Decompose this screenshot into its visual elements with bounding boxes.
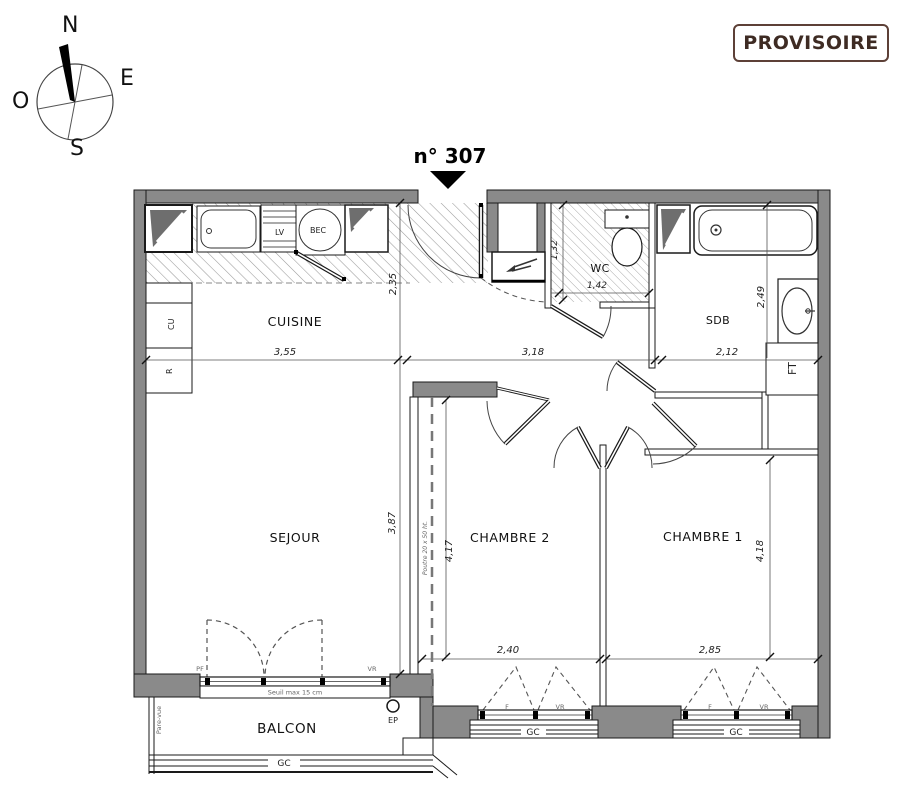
- room-label-wc: WC: [590, 262, 609, 275]
- bathtub-icon: [694, 206, 817, 255]
- compass-east: E: [120, 66, 134, 91]
- pare-vue-label: Pare-vue: [155, 706, 163, 734]
- seuil-note: Seuil max 15 cm: [268, 689, 322, 697]
- dim-cuisine-height: 2,35: [388, 273, 399, 295]
- chambre2-window: GC F VR: [470, 667, 598, 738]
- entry-niche: [492, 252, 545, 282]
- vr-label-chambre1: VR: [760, 703, 769, 711]
- dimension-labels: 3,55 3,18 2,12 2,35 3,87 4,17 4,18 2,49 …: [274, 240, 767, 656]
- sink-icon: [197, 206, 260, 252]
- technical-duct: FT: [766, 343, 818, 395]
- dim-sdb-height: 2,49: [756, 286, 767, 308]
- dim-wc-width: 1,42: [587, 281, 607, 291]
- pf-label: PF: [196, 665, 204, 673]
- compass-west: O: [12, 89, 29, 114]
- compass-north: N: [62, 13, 78, 38]
- vr-label-chambre2: VR: [556, 703, 565, 711]
- dim-chambre1-height: 4,18: [755, 540, 766, 562]
- dim-hall-width: 3,18: [522, 347, 544, 358]
- ep-downspout-icon: [387, 700, 399, 712]
- balcony: GC BALCON EP Pare-vue: [149, 697, 457, 778]
- room-labels: CUISINE SEJOUR CHAMBRE 2 CHAMBRE 1 WC SD…: [268, 262, 743, 545]
- kitchen-window-icon: [145, 205, 192, 252]
- rangement-label: R: [165, 368, 174, 374]
- room-label-cuisine: CUISINE: [268, 314, 323, 329]
- dim-sdb-width: 2,12: [716, 347, 738, 358]
- room-label-sejour: SEJOUR: [270, 530, 321, 545]
- cumulus-label: CU: [167, 318, 176, 330]
- bathroom-window-icon: [657, 205, 690, 253]
- dim-chambre1-window: 2,85: [699, 645, 721, 656]
- entrance-marker-icon: [430, 171, 466, 189]
- dim-chambre2-height: 4,17: [444, 539, 455, 562]
- floor-plan-page: PROVISOIRE n° 307 N E O S: [0, 0, 914, 800]
- dim-sejour-height: 3,87: [387, 511, 398, 534]
- beam-note: Poutre 20 x 50 ht.: [422, 521, 429, 575]
- kitchen-fixtures: LV BEC CU R: [145, 205, 388, 393]
- compass-south: S: [70, 136, 84, 161]
- gc-label-chambre2: GC: [526, 728, 539, 738]
- boiler-icon: BEC: [296, 205, 345, 255]
- ft-label: FT: [786, 362, 799, 375]
- floor-plan-drawing: N E O S: [0, 0, 914, 800]
- vr-label-sejour: VR: [368, 665, 377, 673]
- room-label-balcon: BALCON: [257, 721, 317, 737]
- f-label-chambre2: F: [505, 703, 509, 711]
- dim-wc-height: 1,32: [550, 240, 560, 260]
- compass-rose: N E O S: [12, 13, 134, 161]
- kitchen-window2-icon: [345, 205, 388, 252]
- gc-label-balcony: GC: [277, 759, 290, 769]
- washbasin-icon: [778, 279, 818, 343]
- ep-label: EP: [388, 716, 398, 725]
- balcony-guardrail: [149, 755, 457, 778]
- gc-label-chambre1: GC: [729, 728, 742, 738]
- dim-chambre2-window: 2,40: [497, 645, 519, 656]
- dim-cuisine-width: 3,55: [274, 347, 296, 358]
- sejour-french-doors: Seuil max 15 cm PF VR: [196, 620, 390, 698]
- boiler-label: BEC: [310, 226, 327, 235]
- hall-doors: [487, 401, 696, 468]
- chambre1-window: GC F VR: [673, 667, 800, 738]
- f-label-chambre1: F: [708, 703, 712, 711]
- dishwasher-label: LV: [275, 228, 285, 237]
- room-label-sdb: SDB: [706, 314, 730, 327]
- compass-needle-icon: [59, 44, 75, 102]
- room-label-chambre1: CHAMBRE 1: [663, 529, 743, 544]
- room-label-chambre2: CHAMBRE 2: [470, 530, 550, 545]
